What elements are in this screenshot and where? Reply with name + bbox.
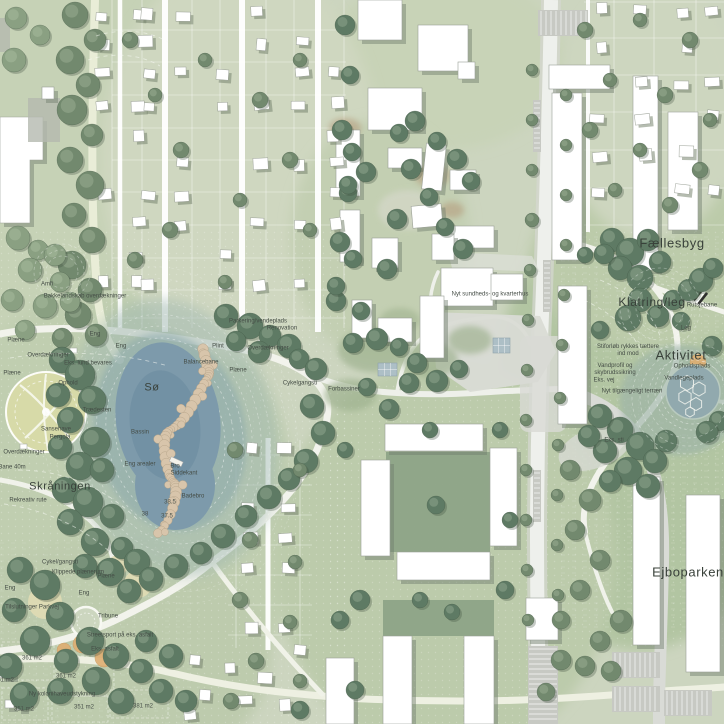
masterplan-canvas: FællesbygKlatring/legAktivitetEjboparken… (0, 0, 724, 724)
canopy-structure (20, 444, 27, 449)
site-plan-map (0, 0, 724, 724)
